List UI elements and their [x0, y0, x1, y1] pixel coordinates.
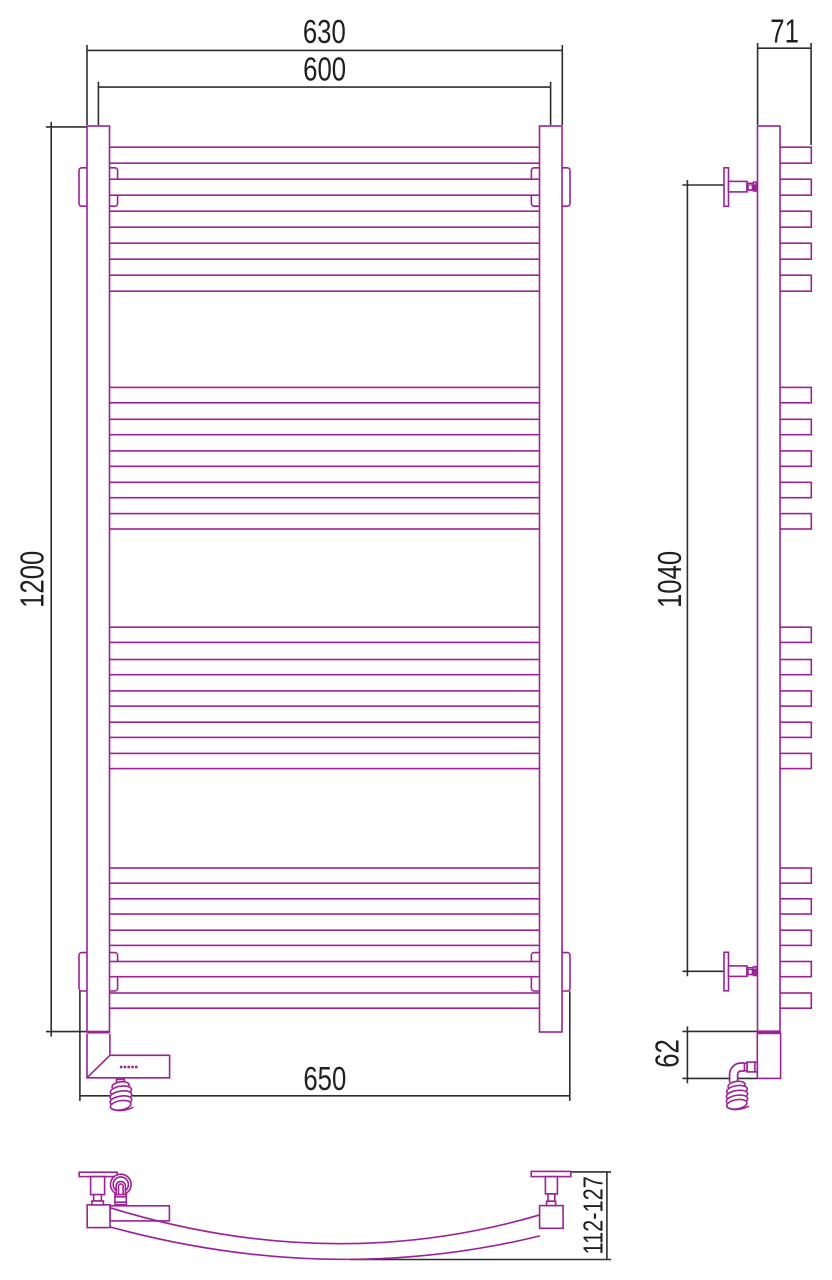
svg-text:71: 71	[770, 13, 799, 50]
svg-text:1040: 1040	[652, 551, 689, 608]
svg-text:650: 650	[303, 1061, 346, 1098]
svg-text:600: 600	[303, 52, 346, 89]
svg-text:112-127: 112-127	[578, 1176, 609, 1254]
svg-text:630: 630	[303, 14, 346, 51]
svg-text:1200: 1200	[14, 551, 51, 608]
svg-text:62: 62	[650, 1039, 687, 1068]
